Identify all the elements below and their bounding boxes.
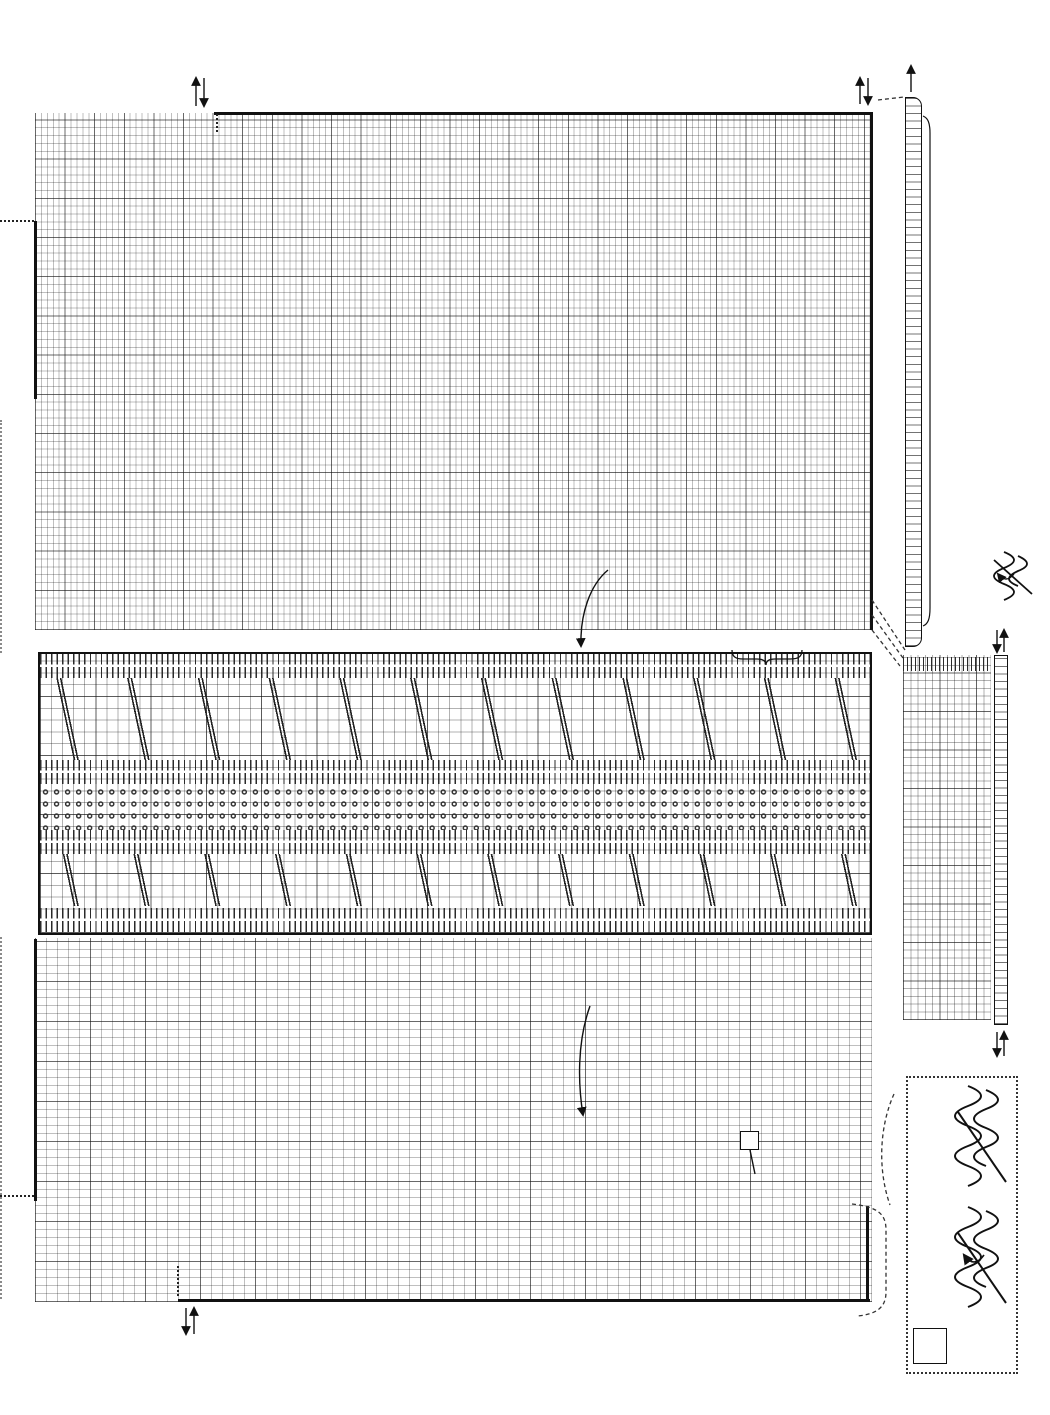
continuation-dots <box>0 220 34 222</box>
chart-gusset <box>903 655 991 1020</box>
dashed-connector <box>882 1094 894 1205</box>
pickup-bracket <box>923 116 930 626</box>
chart1-top-border <box>214 112 872 115</box>
dashed-connector <box>872 615 903 658</box>
purl-tick-band <box>40 654 870 678</box>
dashed-connector <box>872 630 900 666</box>
chart3-left-border <box>34 939 37 1201</box>
cable-band <box>40 854 870 906</box>
twist-symbol-box <box>740 1131 759 1150</box>
chart-body-upper <box>35 113 872 630</box>
purl-tick-band <box>40 908 870 932</box>
cable-band <box>40 678 870 760</box>
gusset-edge-strip <box>994 655 1008 1025</box>
pickup-stitch-strip <box>905 97 922 647</box>
continuation-dots <box>216 114 218 132</box>
chart-body-lower <box>35 938 872 1302</box>
purl-tick-band <box>40 830 870 854</box>
chart1-left-border <box>34 221 37 399</box>
continuation-dots <box>177 1266 179 1296</box>
purl-tick-band <box>903 657 991 671</box>
dashed-connector <box>878 97 904 100</box>
chart3-right-border <box>866 1206 869 1302</box>
dashed-connector <box>872 600 905 650</box>
lace-band <box>40 786 870 830</box>
chart-pattern-band <box>38 652 872 935</box>
purl-tick-band <box>40 760 870 784</box>
guide-line <box>0 937 2 1299</box>
front-side-drawing <box>994 552 1032 600</box>
omega-symbol-box <box>913 1328 947 1364</box>
guide-line <box>0 420 2 653</box>
continuation-dots <box>0 1195 34 1197</box>
chart1-right-border <box>870 112 873 630</box>
scanned-knitting-chart-page <box>0 0 1050 1415</box>
chart3-bottom-border <box>178 1299 870 1302</box>
